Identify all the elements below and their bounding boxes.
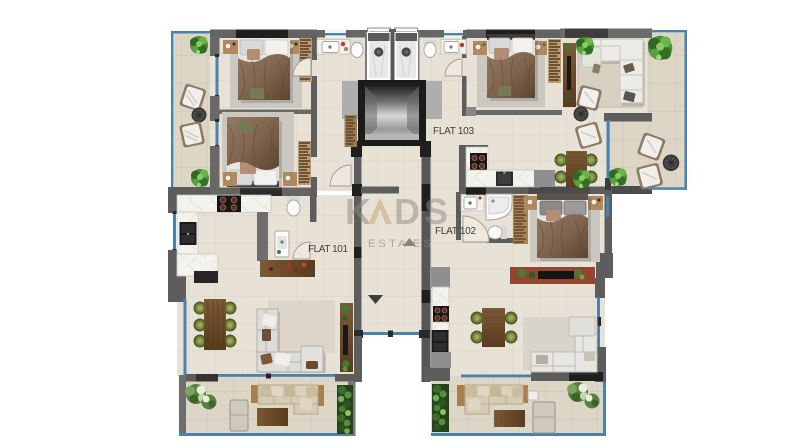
svg-text:ES: ES <box>413 238 434 250</box>
svg-text:D: D <box>394 191 420 232</box>
svg-text:K: K <box>345 191 372 232</box>
svg-text:ESTA: ESTA <box>368 238 409 250</box>
svg-text:FLAT 101: FLAT 101 <box>308 244 348 255</box>
svg-text:FLAT 103: FLAT 103 <box>433 126 474 137</box>
svg-text:FLAT 102: FLAT 102 <box>435 226 476 237</box>
